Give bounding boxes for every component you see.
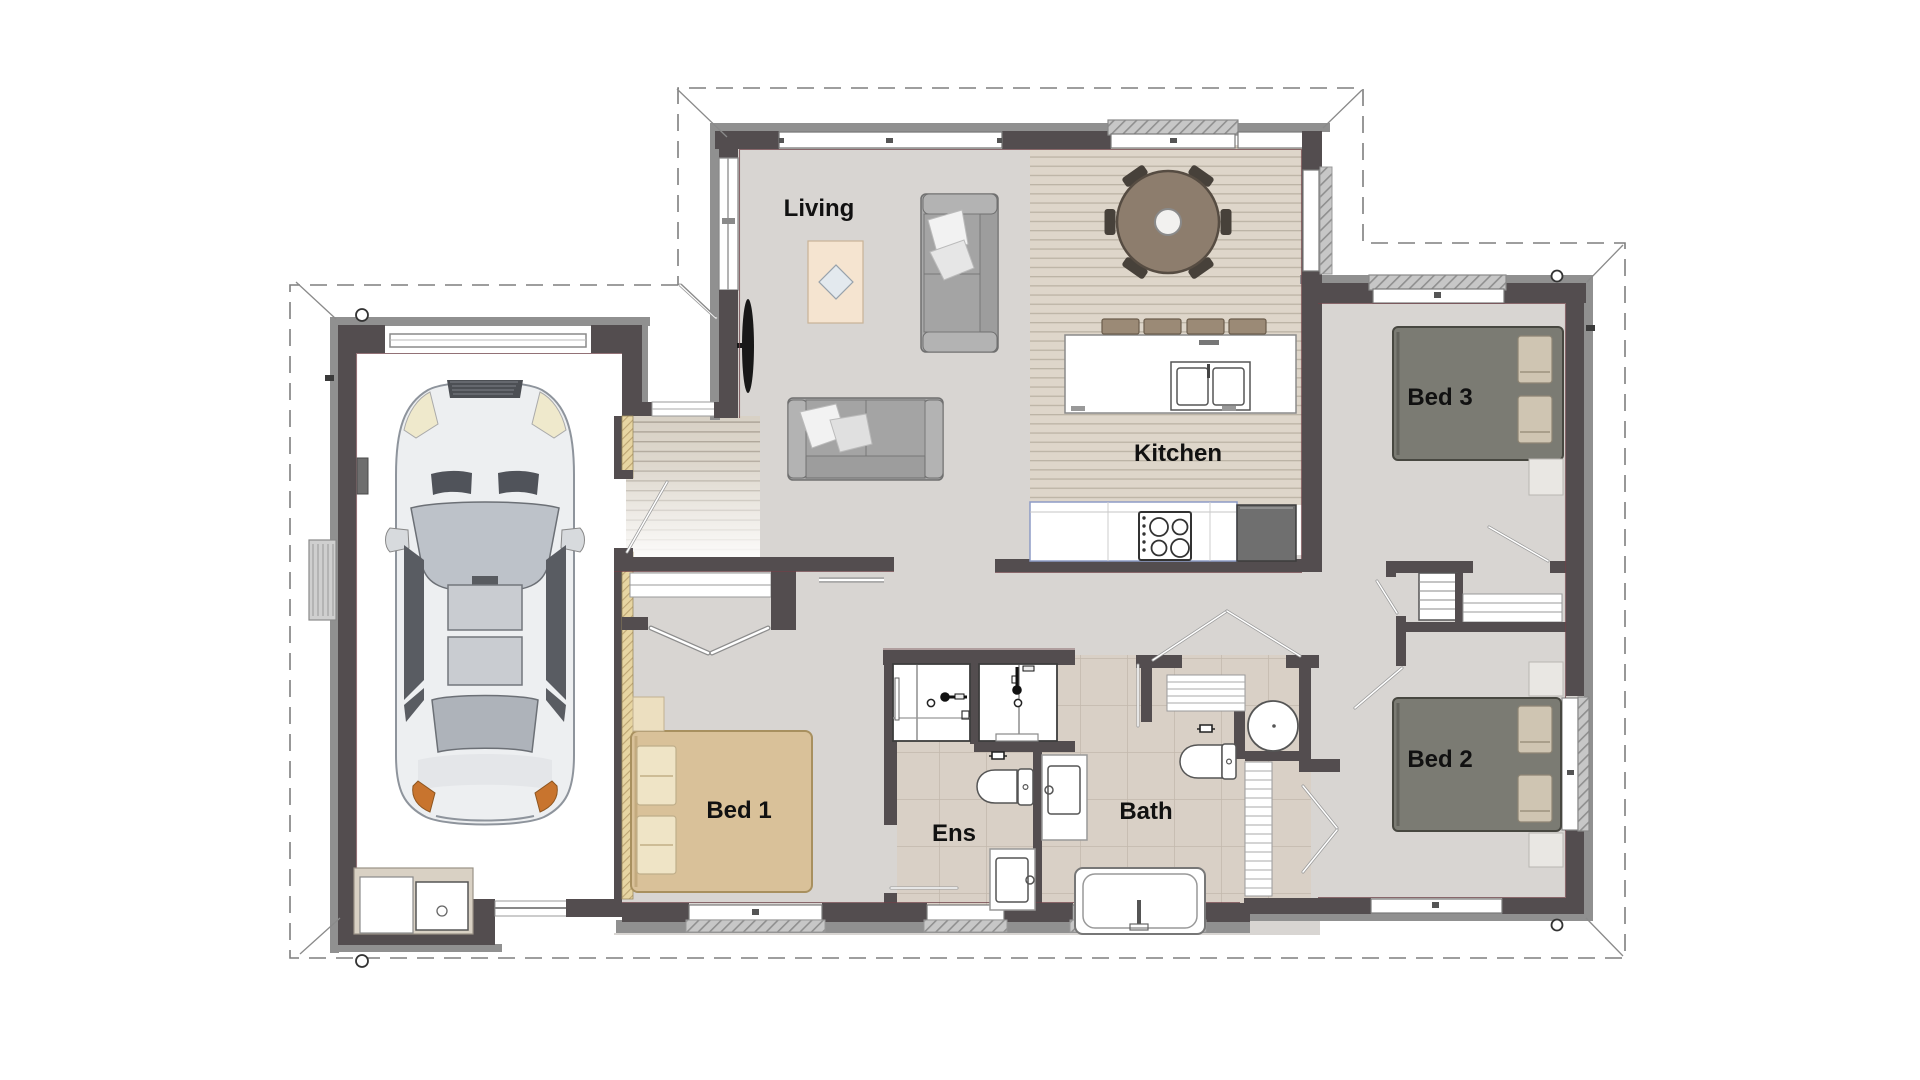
svg-text:Bed 2: Bed 2: [1407, 746, 1472, 773]
svg-text:Bed 3: Bed 3: [1407, 384, 1472, 411]
svg-text:Bath: Bath: [1119, 798, 1172, 825]
svg-text:Bed 1: Bed 1: [706, 797, 771, 824]
svg-text:Ens: Ens: [932, 820, 976, 847]
svg-text:Kitchen: Kitchen: [1134, 440, 1222, 467]
svg-text:Living: Living: [784, 195, 855, 222]
